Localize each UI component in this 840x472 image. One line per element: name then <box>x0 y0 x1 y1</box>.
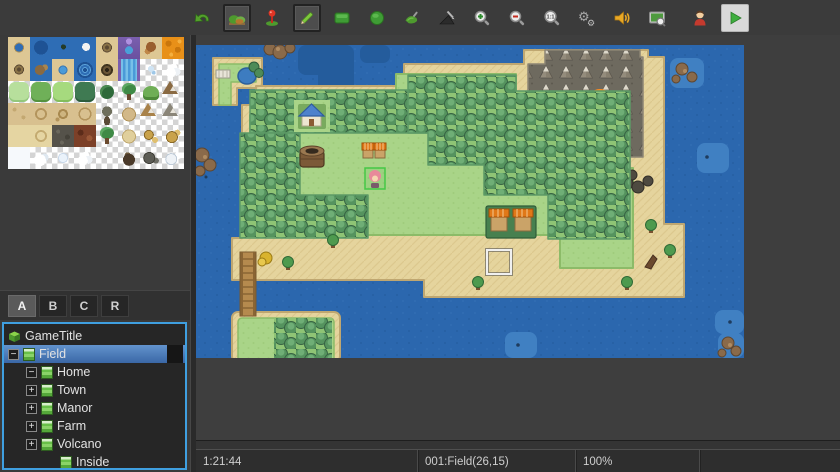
palette-tile-lava[interactable] <box>162 37 184 59</box>
tree-item-inside[interactable]: Inside <box>4 453 185 470</box>
toolbar: 1:1 ⚙ ⚙ <box>0 0 840 36</box>
svg-text:1:1: 1:1 <box>546 14 554 20</box>
palette-tile-sand-mound[interactable] <box>118 125 140 147</box>
palette-tile-snow-pile[interactable] <box>30 147 52 169</box>
game-cube-icon <box>8 330 21 343</box>
palette-tile-sand-brush[interactable] <box>140 37 162 59</box>
tree-item-farm[interactable]: + Farm <box>4 417 185 435</box>
tree-item-manor[interactable]: + Manor <box>4 399 185 417</box>
palette-tile-water-deep[interactable] <box>30 37 52 59</box>
status-divider <box>196 440 840 449</box>
palette-tile-sand-swirl[interactable] <box>96 37 118 59</box>
expand-icon[interactable]: + <box>26 439 37 450</box>
palette-tile-waterfall[interactable] <box>118 59 140 81</box>
palette-tile-tree[interactable] <box>118 81 140 103</box>
play-icon <box>725 8 745 28</box>
zoom-in-icon <box>472 8 492 28</box>
palette-tile-waterfall-top[interactable] <box>118 37 140 59</box>
flood-fill-icon <box>402 8 422 28</box>
shadow-pen-icon <box>437 8 457 28</box>
zoom-out-icon <box>507 8 527 28</box>
actual-size-icon: 1:1 <box>542 8 562 28</box>
palette-tile-rocks-dark[interactable] <box>140 147 162 169</box>
ellipse-icon <box>367 8 387 28</box>
map-viewport <box>196 35 840 440</box>
map-mode-icon <box>227 8 247 28</box>
palette-tile-rock-dark[interactable] <box>118 147 140 169</box>
palette-tile-snow-plain[interactable] <box>8 147 30 169</box>
tree-item-label: GameTitle <box>25 329 82 343</box>
zoom-in-button[interactable] <box>468 4 496 32</box>
palette-tile-dirt-ring2[interactable] <box>52 103 74 125</box>
row-end-block <box>167 345 183 363</box>
map-icon <box>23 348 35 361</box>
pencil-icon <box>297 8 317 28</box>
palette-tile-sand-vortex[interactable] <box>96 59 118 81</box>
tree-item-label: Farm <box>57 419 86 433</box>
map-icon <box>41 366 53 379</box>
palette-tile-cloud[interactable] <box>162 59 184 81</box>
actual-size-button[interactable]: 1:1 <box>538 4 566 32</box>
palette-tile-bush[interactable] <box>96 81 118 103</box>
palette-tile-mountain-brown[interactable] <box>162 81 184 103</box>
palette-tile-dirt-plain[interactable] <box>8 103 30 125</box>
map-canvas[interactable] <box>196 45 744 358</box>
database-button[interactable]: ⚙ ⚙ <box>573 4 601 32</box>
palette-tile-grass-light[interactable] <box>8 81 30 103</box>
tab-r[interactable]: R <box>101 295 129 317</box>
status-time: 1:21:44 <box>196 450 418 472</box>
house <box>294 100 330 132</box>
bottom-forest <box>274 318 332 358</box>
palette-tile-whirlpool[interactable] <box>74 59 96 81</box>
palette-tile-snow-rocks[interactable] <box>162 147 184 169</box>
palette-tab-strip: A B C R <box>0 290 190 320</box>
palette-tile-water-ship[interactable] <box>74 37 96 59</box>
palette-tile-dirt-ring3[interactable] <box>74 103 96 125</box>
palette-tile-rocks-gold2[interactable] <box>162 125 184 147</box>
palette-tile-mountain-rock[interactable] <box>162 103 184 125</box>
tileset-palette <box>0 35 190 290</box>
palette-tile-ice-shard[interactable] <box>52 147 74 169</box>
palette-tile-grass-bright[interactable] <box>52 81 74 103</box>
pencil-tool-button[interactable] <box>293 4 321 32</box>
status-map-info: 001:Field(26,15) <box>418 450 576 472</box>
left-panel: A B C R GameTitle − Field − <box>0 35 190 472</box>
palette-tile-hill[interactable] <box>140 81 162 103</box>
map-icon <box>41 438 53 451</box>
palette-tile-grass-dark[interactable] <box>74 81 96 103</box>
sound-icon <box>612 8 632 28</box>
map-icon <box>41 384 53 397</box>
tree-item-label: Home <box>57 365 90 379</box>
tree-item-label: Inside <box>76 455 109 469</box>
palette-tile-gravel[interactable] <box>52 125 74 147</box>
palette-tile-water-rocks[interactable] <box>30 59 52 81</box>
palette-tile-mountain-dirt[interactable] <box>140 103 162 125</box>
market-stalls <box>486 206 536 238</box>
tree-item-label: Manor <box>57 401 92 415</box>
flood-fill-tool-button[interactable] <box>398 4 426 32</box>
status-empty <box>700 450 840 472</box>
well <box>300 146 324 167</box>
palette-tile-sand-ring[interactable] <box>30 125 52 147</box>
expand-icon[interactable]: + <box>26 421 37 432</box>
shadow-pen-tool-button[interactable] <box>433 4 461 32</box>
map-mode-button[interactable] <box>223 4 251 32</box>
palette-tile-water-boat[interactable] <box>52 37 74 59</box>
palette-tile-rocks-gold[interactable] <box>140 125 162 147</box>
zoom-out-button[interactable] <box>503 4 531 32</box>
palette-tile-dead-tree[interactable] <box>96 103 118 125</box>
tab-b[interactable]: B <box>39 295 67 317</box>
palette-tile-snow-cloud[interactable] <box>74 147 96 169</box>
tree-item-label: Town <box>57 383 86 397</box>
tree-item-town[interactable]: + Town <box>4 381 185 399</box>
tree-item-volcano[interactable]: + Volcano <box>4 435 185 453</box>
bridge <box>240 252 256 316</box>
tree-item-label: Volcano <box>57 437 101 451</box>
collapse-icon[interactable]: − <box>8 349 19 360</box>
palette-tile-sand-plain[interactable] <box>8 125 30 147</box>
screen-search-icon <box>647 8 667 28</box>
palette-tile-dirt-mound[interactable] <box>118 103 140 125</box>
playtest-button[interactable] <box>721 4 749 32</box>
ellipse-tool-button[interactable] <box>363 4 391 32</box>
character-icon <box>690 8 710 28</box>
character-generator-button[interactable] <box>686 4 714 32</box>
undo-icon <box>192 8 212 28</box>
tab-c[interactable]: C <box>70 295 98 317</box>
status-zoom-level: 100% <box>576 450 700 472</box>
event-mode-button[interactable] <box>258 4 286 32</box>
editor-area: 1:21:44 001:Field(26,15) 100% <box>196 35 840 472</box>
rectangle-icon <box>332 8 352 28</box>
map-tree-panel: GameTitle − Field − Home + Town + M <box>2 322 187 470</box>
rpg-maker-editor-window: 1:1 ⚙ ⚙ <box>0 0 840 472</box>
tileset-grid <box>8 37 184 169</box>
expand-icon[interactable]: + <box>26 385 37 396</box>
map-icon <box>41 402 53 415</box>
map-icon <box>41 420 53 433</box>
event-mode-icon <box>262 8 282 28</box>
collapse-icon[interactable]: − <box>26 367 37 378</box>
svg-text:⚙: ⚙ <box>587 19 595 28</box>
expand-icon[interactable]: + <box>26 403 37 414</box>
character-sprite[interactable] <box>365 168 385 189</box>
palette-tile-sand-hole[interactable] <box>8 37 30 59</box>
palette-tile-sand-pond[interactable] <box>52 59 74 81</box>
palette-tile-grass-mid[interactable] <box>30 81 52 103</box>
tree-item-field[interactable]: − Field <box>4 345 185 363</box>
palette-tile-lava-rock[interactable] <box>74 125 96 147</box>
rectangle-tool-button[interactable] <box>328 4 356 32</box>
palette-tile-sparkle[interactable] <box>140 59 162 81</box>
sound-test-button[interactable] <box>608 4 636 32</box>
map-icon <box>60 456 72 469</box>
palette-tile-dirt-ring1[interactable] <box>30 103 52 125</box>
status-bar: 1:21:44 001:Field(26,15) 100% <box>196 449 840 472</box>
gears-icon: ⚙ ⚙ <box>577 8 597 28</box>
palette-tile-empty[interactable] <box>96 147 118 169</box>
tab-a[interactable]: A <box>8 295 36 317</box>
palette-tile-sand-swirl[interactable] <box>8 59 30 81</box>
deployment-button[interactable] <box>643 4 671 32</box>
tree-item-gametitle[interactable]: GameTitle <box>4 327 185 345</box>
palette-tile-tree-green[interactable] <box>96 125 118 147</box>
tree-item-label: Field <box>39 347 66 361</box>
undo-button[interactable] <box>188 4 216 32</box>
tree-item-home[interactable]: − Home <box>4 363 185 381</box>
